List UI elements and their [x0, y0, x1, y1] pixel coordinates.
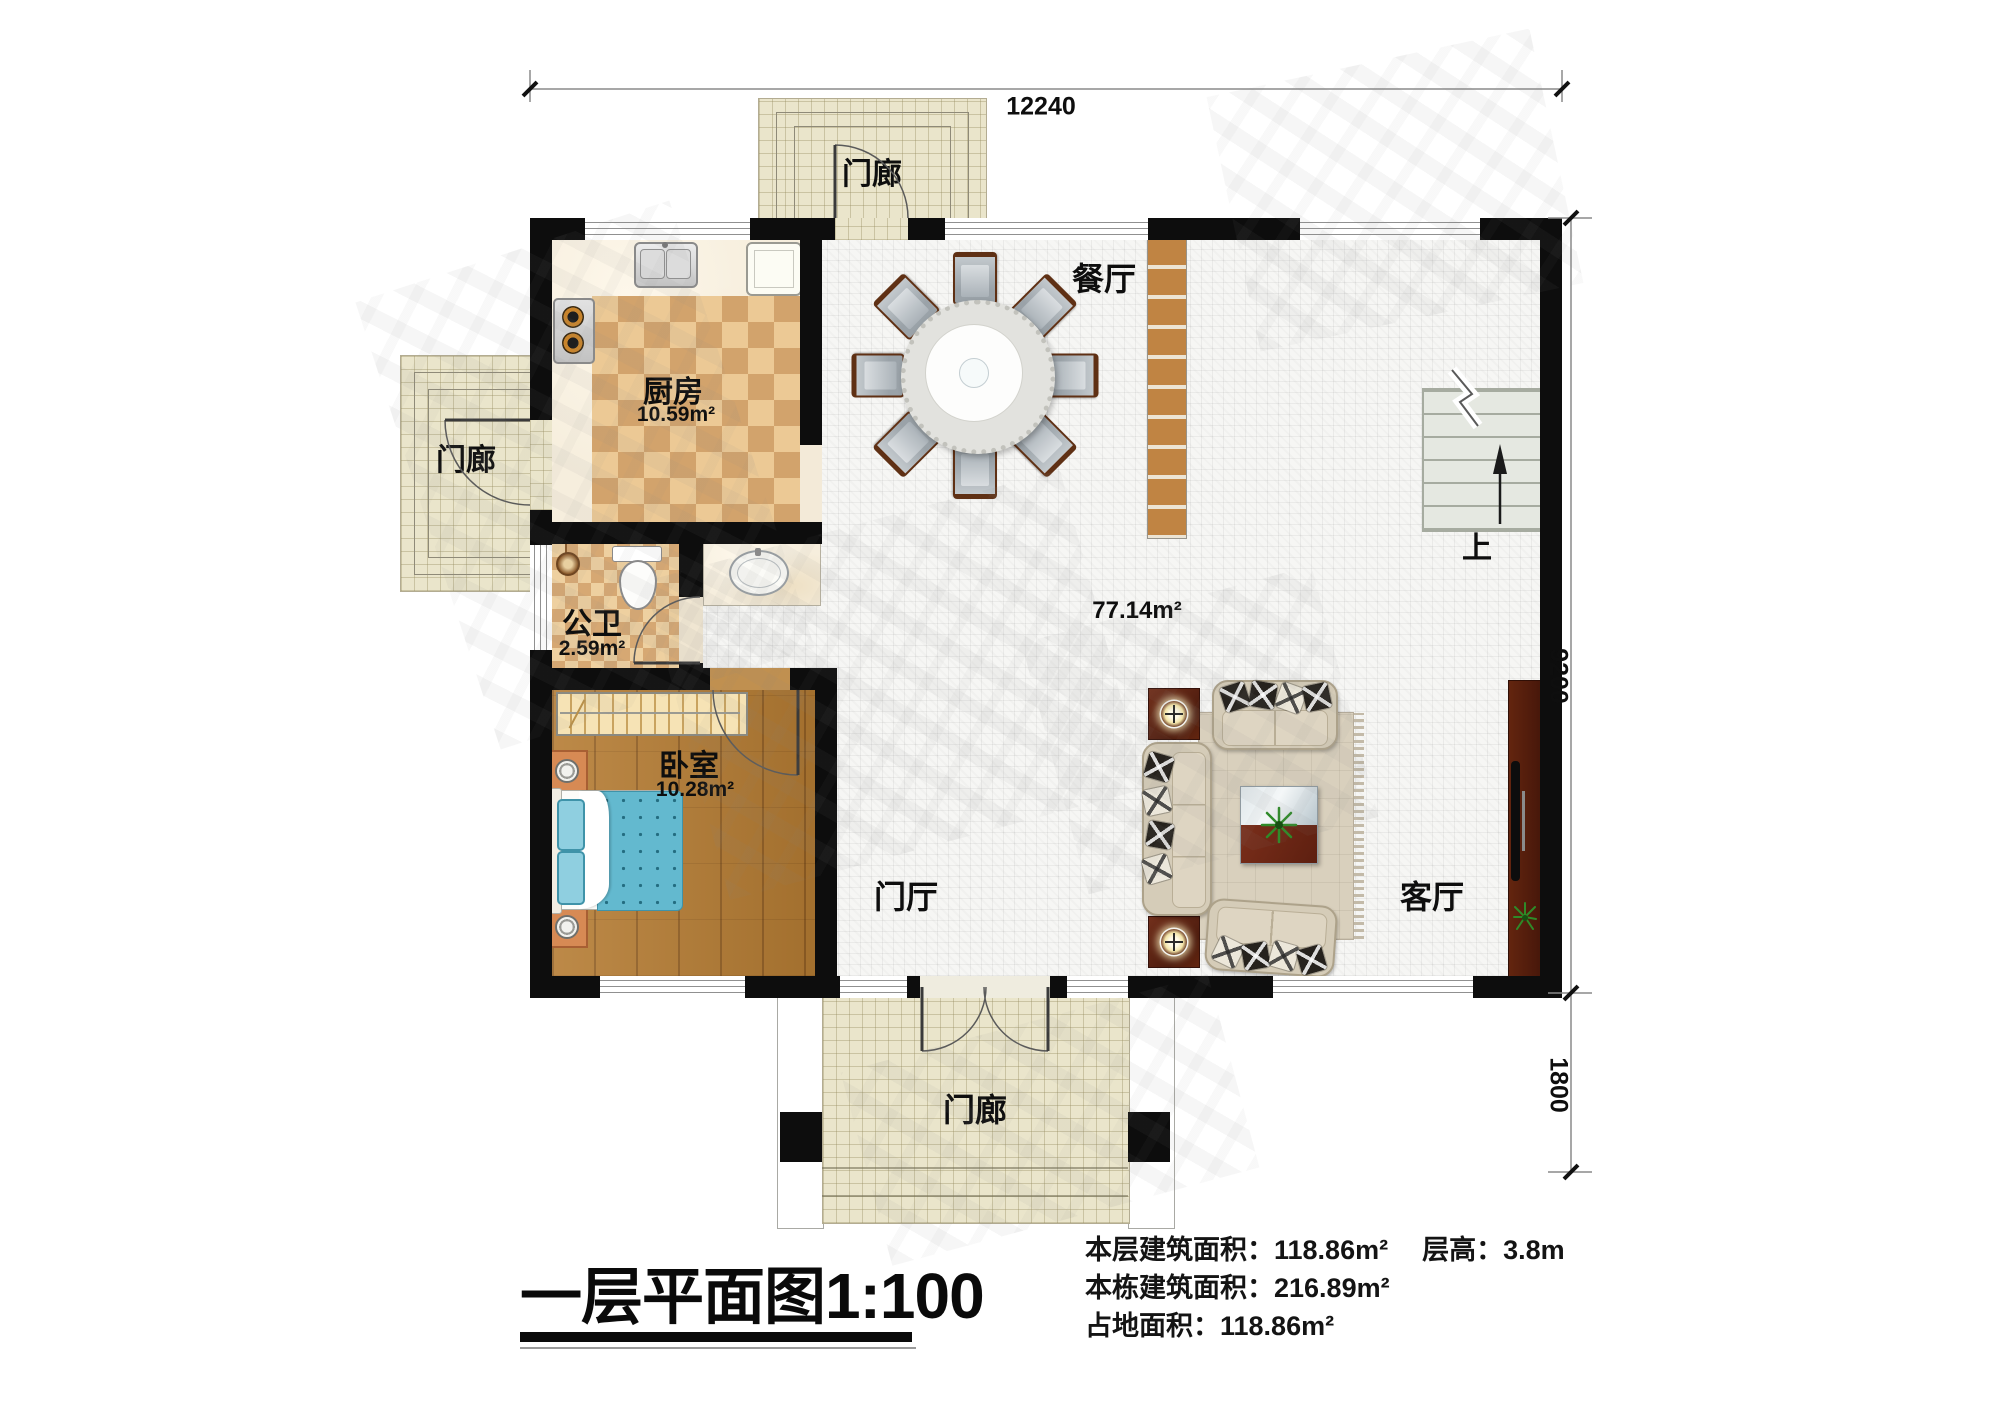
info-row-building: 本栋建筑面积：216.89m²	[1085, 1269, 1565, 1307]
building-area-label: 本栋建筑面积：	[1085, 1273, 1274, 1303]
story-height-label: 层高：	[1422, 1235, 1503, 1265]
footprint-label: 占地面积：	[1085, 1311, 1220, 1341]
area-info-block: 本层建筑面积：118.86m²层高：3.8m 本栋建筑面积：216.89m² 占…	[1085, 1231, 1565, 1345]
floor-plan: 门廊 门廊 门廊 餐厅 厨房 10.59m² 公卫 2.59m² 卧室 10.2…	[0, 0, 2000, 1413]
info-row-footprint: 占地面积：118.86m²	[1085, 1307, 1565, 1345]
info-row-floor: 本层建筑面积：118.86m²层高：3.8m	[1085, 1231, 1565, 1269]
title-underline-thick	[520, 1332, 912, 1342]
title-text: 一层平面图	[520, 1246, 825, 1336]
building-area-value: 216.89m²	[1274, 1273, 1390, 1303]
story-height-value: 3.8m	[1503, 1235, 1565, 1265]
title-scale: 1:100	[825, 1259, 984, 1333]
title-underline-thin	[520, 1347, 916, 1349]
plan-linework	[0, 0, 2000, 1413]
footprint-value: 118.86m²	[1220, 1311, 1334, 1341]
drawing-title: 一层平面图1:100	[520, 1246, 984, 1336]
floor-area-value: 118.86m²	[1274, 1235, 1388, 1265]
floor-area-label: 本层建筑面积：	[1085, 1235, 1274, 1265]
